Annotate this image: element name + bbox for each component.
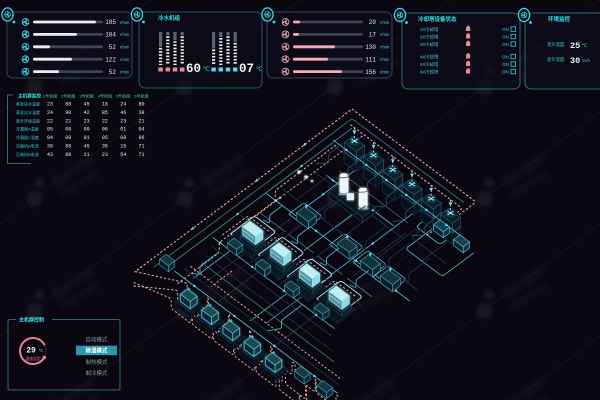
svg-text:06: 06 — [102, 127, 108, 133]
svg-text:1号机组: 1号机组 — [43, 93, 57, 99]
svg-text:23: 23 — [84, 118, 90, 124]
svg-text:46: 46 — [120, 110, 126, 116]
svg-text:4号机组: 4号机组 — [98, 93, 112, 99]
svg-text:室外环境温度: 室外环境温度 — [16, 117, 40, 123]
svg-text:5号机组: 5号机组 — [116, 93, 130, 99]
svg-text:除湿模式: 除湿模式 — [85, 347, 108, 355]
svg-text:23: 23 — [47, 102, 53, 108]
svg-text:01: 01 — [120, 127, 126, 133]
svg-text:温度设定: 温度设定 — [25, 356, 40, 361]
svg-text:主机群监控: 主机群监控 — [18, 93, 41, 100]
svg-text:38: 38 — [47, 144, 53, 150]
svg-text:自动模式: 自动模式 — [85, 336, 108, 344]
svg-text:185: 185 — [105, 19, 116, 26]
svg-text:09: 09 — [84, 127, 90, 133]
svg-text:r/min: r/min — [380, 20, 390, 25]
svg-text:21: 21 — [65, 118, 71, 124]
svg-text:r/min: r/min — [380, 32, 390, 37]
svg-text:07: 07 — [239, 62, 254, 76]
svg-text:90: 90 — [65, 110, 71, 116]
svg-text:r/min: r/min — [380, 57, 390, 62]
svg-text:r/min: r/min — [380, 45, 390, 50]
svg-text:室外湿度:: 室外湿度: — [547, 56, 565, 63]
svg-text:3#冷却塔: 3#冷却塔 — [420, 41, 439, 48]
svg-text:06: 06 — [138, 135, 144, 141]
svg-text:88: 88 — [65, 152, 71, 158]
svg-text:45: 45 — [84, 144, 90, 150]
svg-text:80: 80 — [138, 102, 144, 108]
svg-text:5#冷却塔: 5#冷却塔 — [420, 61, 439, 68]
svg-text:ON: ON — [502, 62, 509, 67]
svg-text:111: 111 — [365, 56, 376, 63]
svg-text:r/min: r/min — [120, 69, 130, 74]
svg-text:环境监控: 环境监控 — [548, 15, 571, 23]
svg-text:17: 17 — [369, 32, 377, 39]
svg-text:压缩机A电流: 压缩机A电流 — [16, 143, 39, 149]
svg-text:℃: ℃ — [39, 348, 44, 353]
svg-text:156: 156 — [365, 69, 376, 76]
svg-text:43: 43 — [47, 152, 53, 158]
svg-text:℃: ℃ — [203, 67, 210, 73]
svg-text:r/min: r/min — [380, 69, 390, 74]
svg-text:1#冷却塔: 1#冷却塔 — [420, 26, 439, 33]
svg-text:冷水机组: 冷水机组 — [158, 14, 181, 22]
svg-text:压缩机B电流: 压缩机B电流 — [16, 151, 39, 157]
svg-text:冷凝器A温度: 冷凝器A温度 — [16, 126, 39, 132]
svg-text:05: 05 — [47, 127, 53, 133]
svg-text:蒸发进水温度: 蒸发进水温度 — [16, 101, 40, 107]
svg-text:122: 122 — [105, 56, 116, 63]
svg-text:主机群控制: 主机群控制 — [19, 317, 44, 324]
svg-text:ON: ON — [502, 55, 509, 60]
svg-text:24: 24 — [120, 102, 126, 108]
svg-text:05: 05 — [102, 135, 108, 141]
svg-text:85: 85 — [102, 110, 108, 116]
svg-text:冷却塔设备状态: 冷却塔设备状态 — [418, 15, 457, 23]
svg-text:24: 24 — [47, 110, 53, 116]
svg-text:22: 22 — [47, 118, 53, 124]
svg-text:01: 01 — [84, 135, 90, 141]
svg-text:54: 54 — [120, 152, 126, 158]
svg-text:08: 08 — [65, 135, 71, 141]
svg-text:21: 21 — [84, 152, 90, 158]
svg-text:%rh: %rh — [582, 58, 590, 63]
svg-text:r/min: r/min — [120, 45, 130, 50]
svg-text:60: 60 — [186, 62, 201, 76]
svg-text:r/min: r/min — [120, 20, 130, 25]
svg-text:04: 04 — [47, 135, 53, 141]
svg-text:2号机组: 2号机组 — [61, 93, 75, 99]
svg-text:04: 04 — [138, 127, 144, 133]
svg-text:130: 130 — [365, 44, 376, 51]
svg-text:88: 88 — [65, 102, 71, 108]
svg-text:ON: ON — [502, 35, 509, 40]
svg-text:88: 88 — [65, 144, 71, 150]
svg-text:45: 45 — [84, 102, 90, 108]
svg-text:ON: ON — [502, 70, 509, 75]
svg-text:21: 21 — [138, 118, 144, 124]
svg-text:30: 30 — [570, 56, 580, 66]
svg-text:冷凝器C温度: 冷凝器C温度 — [16, 134, 39, 140]
svg-text:35: 35 — [102, 144, 108, 150]
svg-text:ON: ON — [502, 42, 509, 47]
svg-text:52: 52 — [109, 44, 117, 51]
svg-text:15: 15 — [120, 144, 126, 150]
svg-text:52: 52 — [109, 69, 117, 76]
svg-text:18: 18 — [102, 102, 108, 108]
svg-text:3号机组: 3号机组 — [79, 93, 93, 99]
svg-text:℃: ℃ — [256, 67, 263, 73]
svg-text:r/min: r/min — [120, 57, 130, 62]
svg-text:42: 42 — [84, 110, 90, 116]
svg-text:4#冷却塔: 4#冷却塔 — [420, 54, 439, 61]
svg-text:71: 71 — [138, 144, 144, 150]
svg-text:6号机组: 6号机组 — [134, 93, 148, 99]
svg-text:08: 08 — [65, 127, 71, 133]
svg-text:104: 104 — [105, 32, 116, 39]
svg-text:2#冷却塔: 2#冷却塔 — [420, 34, 439, 41]
svg-text:r/min: r/min — [120, 32, 130, 37]
svg-text:ON: ON — [502, 27, 509, 32]
svg-text:制热模式: 制热模式 — [85, 358, 108, 366]
svg-text:23: 23 — [120, 118, 126, 124]
svg-text:38: 38 — [138, 110, 144, 116]
svg-text:29: 29 — [26, 347, 36, 356]
svg-text:20: 20 — [369, 19, 377, 26]
svg-text:蒸发出水温度: 蒸发出水温度 — [16, 109, 40, 115]
svg-text:制冷模式: 制冷模式 — [85, 369, 108, 377]
svg-text:22: 22 — [102, 118, 108, 124]
svg-text:25: 25 — [570, 41, 580, 51]
svg-text:室外温度:: 室外温度: — [547, 41, 565, 48]
svg-text:23: 23 — [102, 152, 108, 158]
svg-text:6#冷却塔: 6#冷却塔 — [420, 69, 439, 76]
svg-text:08: 08 — [120, 135, 126, 141]
svg-text:71: 71 — [138, 152, 144, 158]
